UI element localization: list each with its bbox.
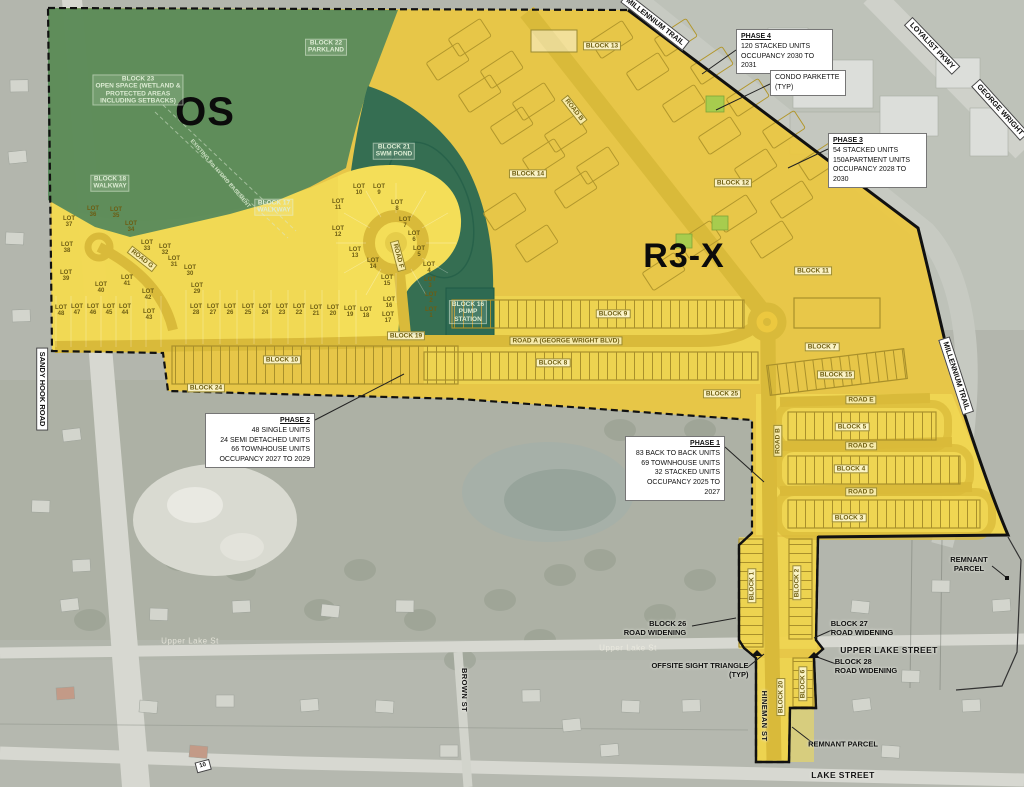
phase-1-callout-line-0: PHASE 1 (630, 439, 720, 449)
phase-2-callout-line-1: 48 SINGLE UNITS (210, 426, 310, 436)
lot-39: LOT 39 (60, 270, 72, 282)
block-10-label: BLOCK 10 (263, 355, 301, 364)
block-17-walkway-label: BLOCK 17 WALKWAY (254, 199, 293, 216)
lot-26: LOT 26 (224, 304, 236, 316)
phase-2-callout-line-2: 24 SEMI DETACHED UNITS (210, 436, 310, 446)
lot-16: LOT 16 (383, 297, 395, 309)
block-18-walkway-label: BLOCK 18 WALKWAY (90, 175, 129, 192)
millennium-trail-top-label: MILLENNIUM TRAIL (620, 0, 690, 51)
phase-3-callout-line-1: 54 STACKED UNITS (833, 146, 922, 156)
lot-42: LOT 42 (142, 289, 154, 301)
block-28-road-widening-label: BLOCK 28 ROAD WIDENING (835, 657, 898, 675)
map-label-layer: OSR3-XBLOCK 23 OPEN SPACE (WETLAND & PRO… (0, 0, 1024, 787)
lot-38: LOT 38 (61, 242, 73, 254)
phase-1-callout-line-4: OCCUPANCY 2025 TO 2027 (630, 478, 720, 498)
lot-15: LOT 15 (381, 275, 393, 287)
lake-street-label: LAKE STREET (811, 771, 874, 781)
block-14-label: BLOCK 14 (509, 169, 547, 178)
route-10-marker: 10 (195, 759, 212, 773)
phase-3-callout-line-0: PHASE 3 (833, 136, 922, 146)
block-6-label: BLOCK 6 (798, 667, 807, 702)
phase-2-callout-line-4: OCCUPANCY 2027 TO 2029 (210, 455, 310, 465)
road-a-label: ROAD A (GEORGE WRIGHT BLVD) (509, 336, 622, 345)
upper-lake-st-faint-west: Upper Lake St (161, 638, 219, 647)
lot-10: LOT 10 (353, 184, 365, 196)
lot-32: LOT 32 (159, 244, 171, 256)
block-26-road-widening-label: BLOCK 26 ROAD WIDENING (624, 619, 687, 637)
block-11-label: BLOCK 11 (794, 266, 832, 275)
condo-parkette-callout-line-0: CONDO PARKETTE (775, 73, 841, 83)
lot-21: LOT 21 (310, 305, 322, 317)
lot-29: LOT 29 (191, 283, 203, 295)
block-8-label: BLOCK 8 (536, 358, 571, 367)
lot-11: LOT 11 (332, 199, 344, 211)
road-f-label: ROAD F (390, 240, 407, 272)
phase-1-callout-line-2: 69 TOWNHOUSE UNITS (630, 459, 720, 469)
lot-24: LOT 24 (259, 304, 271, 316)
lot-19: LOT 19 (344, 306, 356, 318)
block-27-road-widening-label: BLOCK 27 ROAD WIDENING (831, 619, 894, 637)
block-7-label: BLOCK 7 (805, 342, 840, 351)
upper-lake-st-faint-east: Upper Lake St (599, 645, 657, 654)
lot-34: LOT 34 (125, 221, 137, 233)
remnant-parcel-south-label: REMNANT PARCEL (808, 740, 878, 749)
block-22-parkland-label: BLOCK 22 PARKLAND (305, 39, 347, 56)
millennium-trail-right-label: MILLENNIUM TRAIL (938, 336, 974, 415)
block-4-label: BLOCK 4 (834, 464, 869, 473)
lot-2: LOT 2 (425, 292, 437, 304)
block-3-label: BLOCK 3 (832, 513, 867, 522)
phase-4-callout: PHASE 4120 STACKED UNITSOCCUPANCY 2030 T… (736, 29, 833, 74)
block-2-label: BLOCK 2 (792, 566, 801, 601)
phase-2-callout: PHASE 248 SINGLE UNITS24 SEMI DETACHED U… (205, 413, 315, 468)
block-25-label: BLOCK 25 (703, 389, 741, 398)
hydro-easement-label: EXISTING 8m HYDRO EASEMENT (189, 139, 252, 210)
block-15-label: BLOCK 15 (817, 370, 855, 379)
phase-4-callout-line-1: 120 STACKED UNITS (741, 42, 828, 52)
phase-2-callout-line-0: PHASE 2 (210, 416, 310, 426)
road-d-label: ROAD D (845, 487, 877, 496)
block-9-label: BLOCK 9 (596, 309, 631, 318)
lot-7: LOT 7 (399, 217, 411, 229)
lot-30: LOT 30 (184, 265, 196, 277)
lot-37: LOT 37 (63, 216, 75, 228)
block-5-label: BLOCK 5 (835, 422, 870, 431)
lot-22: LOT 22 (293, 304, 305, 316)
phase-4-callout-line-0: PHASE 4 (741, 32, 828, 42)
lot-13: LOT 13 (349, 247, 361, 259)
phase-4-callout-line-2: OCCUPANCY 2030 TO 2031 (741, 52, 828, 72)
phase-1-callout-line-3: 32 STACKED UNITS (630, 468, 720, 478)
lot-35: LOT 35 (110, 207, 122, 219)
hineman-st-label: HINEMAN ST (760, 691, 768, 742)
lot-31: LOT 31 (168, 256, 180, 268)
offsite-sight-triangle-label: OFFSITE SIGHT TRIANGLE (TYP) (651, 661, 748, 679)
road-b-diagonal-label: ROAD B (561, 95, 588, 126)
lot-5: LOT 5 (413, 246, 425, 258)
phase-1-callout: PHASE 183 BACK TO BACK UNITS69 TOWNHOUSE… (625, 436, 725, 501)
remnant-parcel-east-label: REMNANT PARCEL (950, 555, 988, 573)
sandy-hook-road-label: SANDY HOOK ROAD (36, 348, 48, 431)
lot-40: LOT 40 (95, 282, 107, 294)
lot-44: LOT 44 (119, 304, 131, 316)
lot-3: LOT 3 (424, 277, 436, 289)
road-b-vertical-label: ROAD B (773, 425, 782, 457)
lot-1: LOT 1 (425, 307, 437, 319)
condo-parkette-callout-line-1: (TYP) (775, 83, 841, 93)
lot-23: LOT 23 (276, 304, 288, 316)
lot-20: LOT 20 (327, 305, 339, 317)
phase-3-callout: PHASE 354 STACKED UNITS150APARTMENT UNIT… (828, 133, 927, 188)
block-24-label: BLOCK 24 (187, 383, 225, 392)
block-19-label: BLOCK 19 (387, 331, 425, 340)
lot-45: LOT 45 (103, 304, 115, 316)
lot-8: LOT 8 (391, 200, 403, 212)
r3x-zone-label: R3-X (643, 239, 724, 273)
block-13-label: BLOCK 13 (583, 41, 621, 50)
george-wright-label: GEORGE WRIGHT (971, 79, 1024, 142)
os-zone-label: OS (175, 92, 235, 132)
lot-47: LOT 47 (71, 304, 83, 316)
block-23-open-space-label: BLOCK 23 OPEN SPACE (WETLAND & PROTECTED… (92, 74, 183, 105)
block-21-swm-pond-label: BLOCK 21 SWM POND (373, 143, 415, 160)
lot-25: LOT 25 (242, 304, 254, 316)
lot-14: LOT 14 (367, 258, 379, 270)
brown-st-label: BROWN ST (460, 668, 468, 712)
road-e-label: ROAD E (845, 395, 876, 404)
block-20-label: BLOCK 20 (776, 678, 785, 716)
lot-12: LOT 12 (332, 226, 344, 238)
block-16-pump-station-label: BLOCK 16 PUMP STATION (449, 300, 487, 324)
lot-43: LOT 43 (143, 309, 155, 321)
block-1-label: BLOCK 1 (747, 569, 756, 604)
lot-28: LOT 28 (190, 304, 202, 316)
road-c-label: ROAD C (845, 441, 877, 450)
lot-41: LOT 41 (121, 275, 133, 287)
lot-46: LOT 46 (87, 304, 99, 316)
lot-33: LOT 33 (141, 240, 153, 252)
loyalist-pkwy-label: LOYALIST PKWY (904, 17, 961, 75)
lot-4: LOT 4 (423, 262, 435, 274)
lot-17: LOT 17 (382, 312, 394, 324)
lot-18: LOT 18 (360, 307, 372, 319)
upper-lake-street-label: UPPER LAKE STREET (840, 646, 937, 656)
lot-48: LOT 48 (55, 305, 67, 317)
lot-9: LOT 9 (373, 184, 385, 196)
lot-27: LOT 27 (207, 304, 219, 316)
block-12-label: BLOCK 12 (714, 178, 752, 187)
lot-36: LOT 36 (87, 206, 99, 218)
phase-1-callout-line-1: 83 BACK TO BACK UNITS (630, 449, 720, 459)
phase-3-callout-line-3: OCCUPANCY 2028 TO 2030 (833, 165, 922, 185)
site-plan-map: OSR3-XBLOCK 23 OPEN SPACE (WETLAND & PRO… (0, 0, 1024, 787)
lot-6: LOT 6 (408, 231, 420, 243)
phase-2-callout-line-3: 66 TOWNHOUSE UNITS (210, 445, 310, 455)
phase-3-callout-line-2: 150APARTMENT UNITS (833, 156, 922, 166)
condo-parkette-callout: CONDO PARKETTE(TYP) (770, 70, 846, 96)
